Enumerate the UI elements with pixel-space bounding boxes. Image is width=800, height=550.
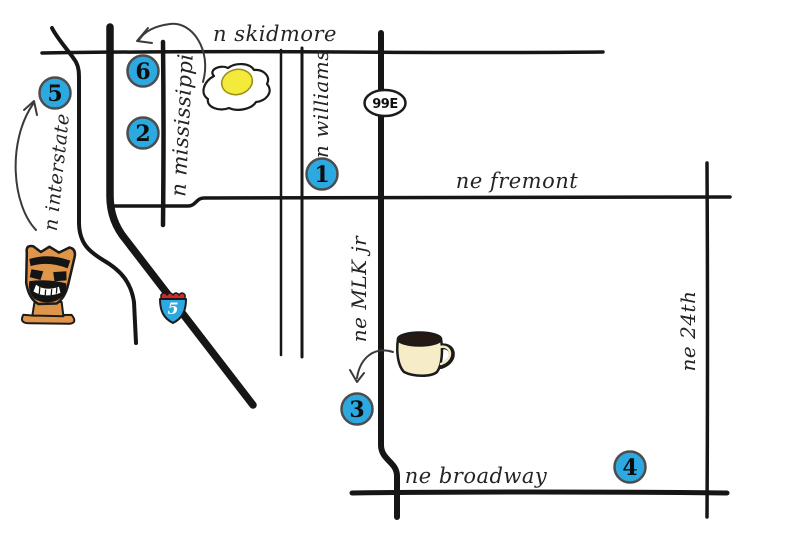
street-label-mississippi: n mississippi	[166, 53, 197, 198]
mug-coffee-surface	[398, 333, 441, 346]
fried-egg-icon	[203, 64, 269, 110]
marker-4-number: 4	[622, 455, 637, 481]
road-ne-24th	[707, 163, 708, 517]
marker-2[interactable]: 2	[128, 118, 159, 149]
road-n-mississippi	[163, 42, 164, 225]
tiki-statue-icon	[20, 244, 80, 327]
route-99e-label: 99E	[372, 97, 397, 112]
marker-5-number: 5	[47, 81, 62, 107]
street-label-skidmore: n skidmore	[213, 22, 337, 46]
marker-3[interactable]: 3	[342, 394, 373, 425]
street-label-fremont: ne fremont	[456, 169, 578, 193]
street-label-interstate: n interstate	[40, 112, 74, 232]
map-canvas: n skidmore n mississippi n williams ne f…	[0, 0, 800, 550]
street-label-mlk: ne MLK jr	[347, 235, 371, 342]
route-99e-shield: 99E	[365, 90, 406, 116]
marker-1[interactable]: 1	[307, 159, 338, 190]
street-label-ne24th: ne 24th	[676, 291, 700, 372]
hand-drawn-map: n skidmore n mississippi n williams ne f…	[0, 0, 800, 550]
road-ne-broadway	[352, 492, 727, 493]
marker-1-number: 1	[314, 162, 329, 188]
i5-shield-number: 5	[167, 299, 178, 318]
street-label-broadway: ne broadway	[405, 464, 548, 488]
coffee-mug-icon	[397, 333, 452, 376]
marker-3-number: 3	[349, 397, 364, 423]
marker-4[interactable]: 4	[615, 452, 646, 483]
marker-5[interactable]: 5	[40, 78, 71, 109]
marker-2-number: 2	[135, 121, 150, 147]
arrows-layer	[16, 24, 393, 382]
arrow-tiki-to-marker-5	[16, 104, 36, 230]
street-label-williams: n williams	[309, 50, 333, 158]
road-ne-fremont	[113, 197, 730, 206]
marker-6-number: 6	[135, 59, 150, 85]
marker-6[interactable]: 6	[128, 56, 159, 87]
